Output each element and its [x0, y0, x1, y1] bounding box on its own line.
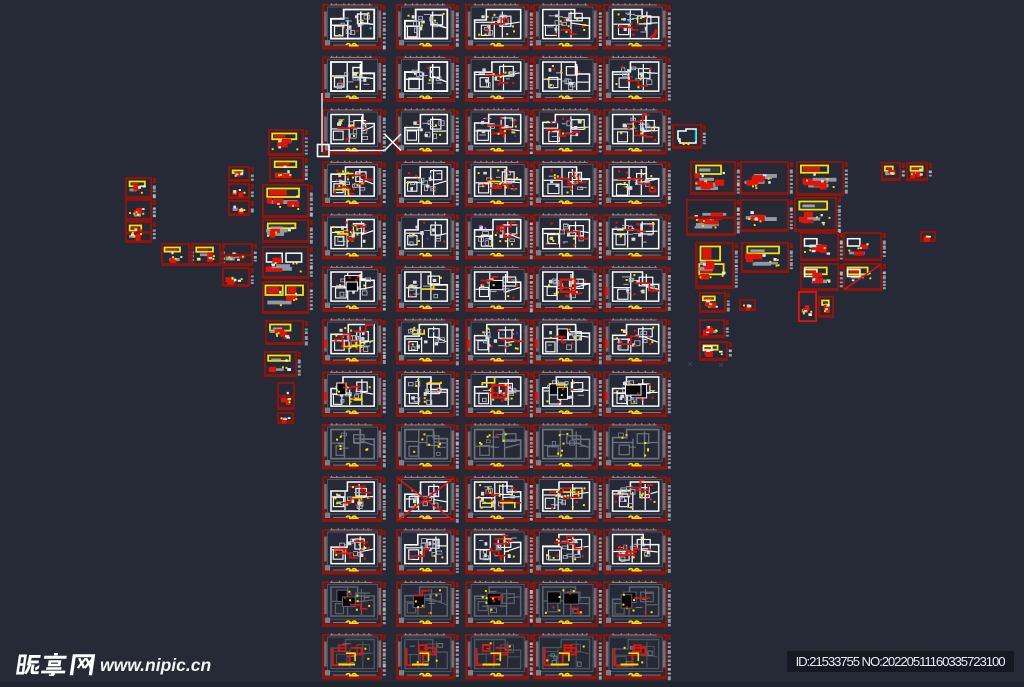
svg-text:www.nipic.cn: www.nipic.cn — [100, 655, 211, 675]
svg-text:ID:21533755 NO:202205111603357: ID:21533755 NO:20220511160335723100 — [796, 654, 1006, 669]
